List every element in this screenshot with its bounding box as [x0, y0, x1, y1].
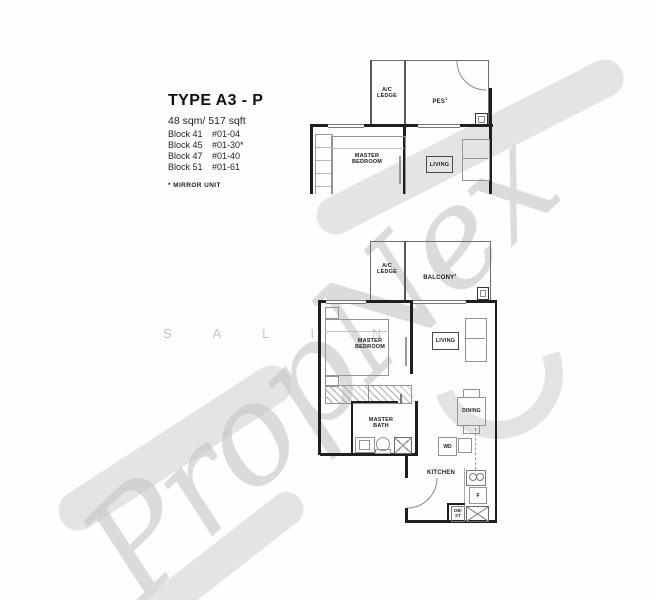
toilet-tank: [375, 449, 391, 454]
dining-chair: [463, 425, 480, 434]
bed-pillow-line: [331, 148, 404, 149]
sofa-cushion-line: [462, 158, 488, 159]
exterior-wall: [320, 453, 353, 456]
sliding-door-panel: [405, 337, 407, 366]
unit-area: 48 sqm/ 517 sqft: [168, 115, 246, 127]
exterior-wall: [318, 300, 321, 455]
balcony-label: BALCONY1: [412, 266, 468, 282]
service-shaft: [466, 506, 489, 522]
mirror-unit-note: * MIRROR UNIT: [168, 182, 221, 189]
unit-type-title: TYPE A3 - P: [168, 92, 263, 110]
block-row: Block 51 #01-61: [168, 162, 244, 173]
unit-number: #01-40: [212, 151, 240, 162]
bath-wall: [351, 401, 398, 403]
block-name: Block 41: [168, 129, 212, 140]
entrance-door-arc: [407, 478, 437, 508]
db-st-label: DB/ ST: [454, 509, 462, 519]
block-name: Block 47: [168, 151, 212, 162]
bedside-table: [325, 307, 339, 319]
living-sliding-door: [418, 124, 460, 128]
unit-number: #01-04: [212, 129, 240, 140]
db-notch-wall: [447, 503, 465, 505]
floorplan-lower-full: A/C LEDGE BALCONY1 MASTER BEDROOM LIVING…: [318, 238, 506, 528]
block-list: Block 41 #01-04 Block 45 #01-30* Block 4…: [168, 129, 244, 173]
bedroom-partition-wall: [410, 300, 413, 374]
ac-ledge-label: A/C LEDGE: [368, 87, 406, 100]
fridge: F: [469, 487, 487, 504]
block-row: Block 45 #01-30*: [168, 140, 244, 151]
ac-ledge-label: A/C LEDGE: [368, 263, 406, 276]
pes-gate-door-arc: [457, 61, 486, 90]
shower-area: [394, 437, 412, 454]
sofa: [462, 139, 490, 181]
floorplan-upper-partial: A/C LEDGE PES1 MASTER BEDROOM LIVING: [310, 56, 506, 194]
wardrobe-divider: [368, 385, 369, 402]
washer-dryer: WD: [438, 437, 457, 456]
bath-door-leaf: [400, 394, 402, 404]
block-name: Block 45: [168, 140, 212, 151]
block-row: Block 41 #01-04: [168, 129, 244, 140]
entry-wall: [405, 455, 408, 478]
db-notch-wall: [447, 503, 449, 520]
kitchen-sink: [458, 438, 472, 453]
sofa-cushion-line: [465, 338, 485, 339]
kitchen-label: KITCHEN: [420, 470, 462, 477]
overhead-cabinet-dashed-line: [475, 428, 476, 470]
bed-pillow-line: [325, 331, 387, 332]
agent-watermark-letters: S A L I: [163, 326, 328, 341]
bedroom-window: [326, 300, 366, 304]
meter-box: [477, 287, 489, 300]
block-row: Block 47 #01-40: [168, 151, 244, 162]
master-bath-label: MASTER BATH: [358, 417, 404, 430]
unit-number: #01-61: [212, 162, 240, 173]
dining-table: DINING: [457, 397, 486, 426]
dining-label: DINING: [462, 409, 481, 415]
bath-wall: [415, 401, 418, 455]
bath-wall: [351, 401, 353, 455]
living-label: LIVING: [432, 332, 459, 350]
master-bedroom-label: MASTER BEDROOM: [339, 153, 395, 166]
exterior-wall: [495, 300, 498, 522]
sofa: [465, 318, 487, 362]
master-bedroom-label: MASTER BEDROOM: [342, 338, 398, 351]
exterior-wall: [310, 124, 313, 194]
hob-burner: [476, 473, 484, 481]
block-name: Block 51: [168, 162, 212, 173]
living-label: LIVING: [426, 156, 453, 173]
basin-bowl: [359, 440, 370, 450]
floorplan-page: PropNex S A L I N TYPE A3 - P 48 sqm/ 51…: [0, 0, 656, 600]
unit-number: #01-30*: [212, 140, 244, 151]
bedroom-window: [328, 124, 364, 128]
pes-label: PES1: [420, 90, 460, 106]
db-store: DB/ ST: [451, 506, 465, 522]
balcony-sliding-door: [410, 300, 466, 304]
